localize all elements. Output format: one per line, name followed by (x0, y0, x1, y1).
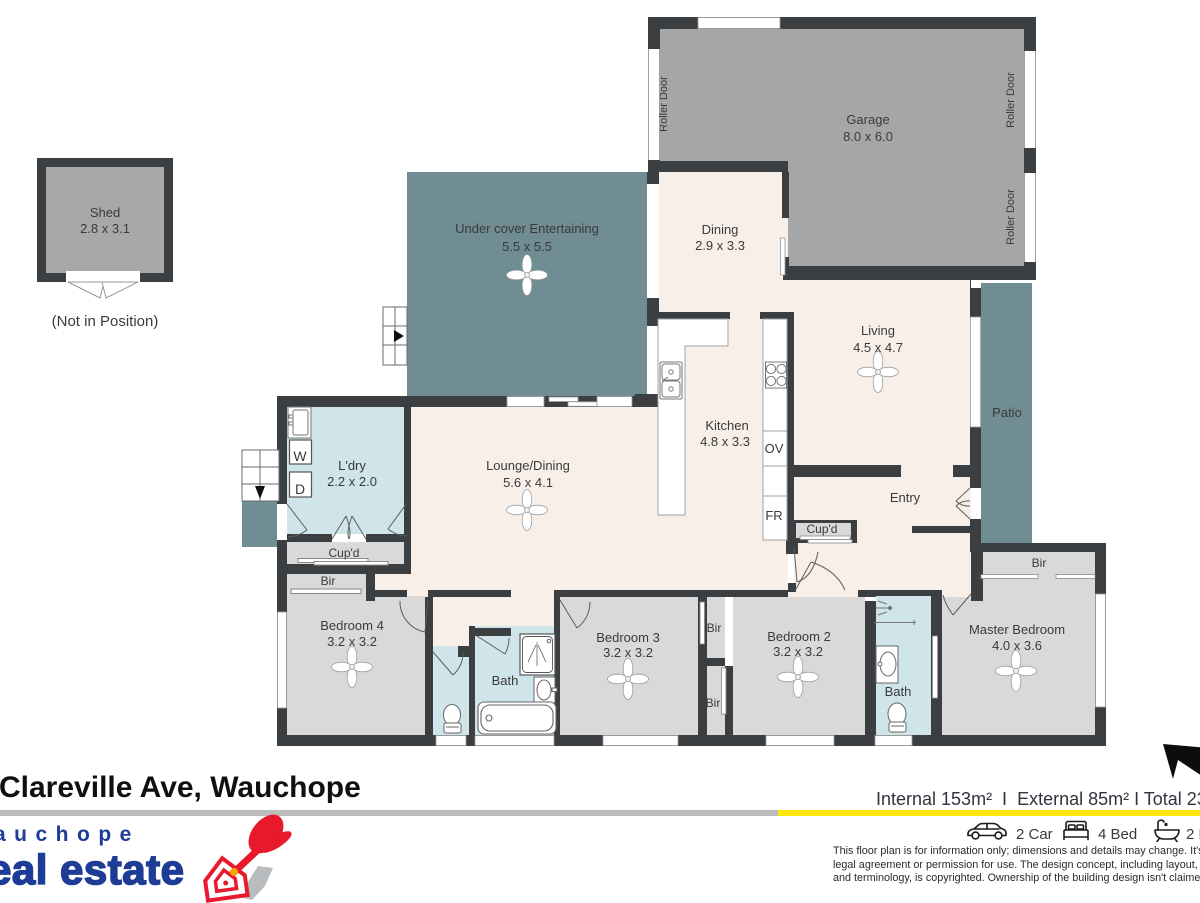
svg-text:Under cover Entertaining: Under cover Entertaining (455, 221, 599, 236)
svg-text:2 Car: 2 Car (1016, 826, 1053, 843)
svg-text:3.2 x 3.2: 3.2 x 3.2 (603, 645, 653, 660)
svg-text:L'dry: L'dry (338, 458, 366, 473)
svg-text:3.2 x 3.2: 3.2 x 3.2 (773, 644, 823, 659)
svg-text:4.5 x 4.7: 4.5 x 4.7 (853, 340, 903, 355)
svg-text:D: D (295, 481, 305, 497)
svg-text:(Not in Position): (Not in Position) (52, 313, 159, 330)
svg-text:3.2 x 3.2: 3.2 x 3.2 (327, 634, 377, 649)
svg-text:4 Bed: 4 Bed (1098, 826, 1137, 843)
svg-text:5.5 x 5.5: 5.5 x 5.5 (502, 239, 552, 254)
svg-text:Garage: Garage (846, 112, 889, 127)
svg-text:Bedroom 2: Bedroom 2 (767, 629, 831, 644)
svg-text:Bir: Bir (707, 621, 722, 635)
svg-text:OV: OV (765, 441, 784, 456)
svg-text:Bir: Bir (1032, 556, 1047, 570)
svg-text:2 B: 2 B (1186, 826, 1200, 843)
svg-text:Bedroom 3: Bedroom 3 (596, 630, 660, 645)
svg-text:Living: Living (861, 323, 895, 338)
svg-text:W: W (293, 448, 307, 464)
svg-text:Patio: Patio (992, 405, 1022, 420)
svg-text:Bir: Bir (706, 696, 721, 710)
svg-text:Cup'd: Cup'd (329, 546, 360, 560)
svg-text:Bath: Bath (885, 684, 912, 699)
svg-text:Entry: Entry (890, 490, 921, 505)
svg-text:2.9 x 3.3: 2.9 x 3.3 (695, 238, 745, 253)
svg-text:Master Bedroom: Master Bedroom (969, 622, 1065, 637)
svg-text:2.2 x 2.0: 2.2 x 2.0 (327, 474, 377, 489)
svg-text:4.0 x 3.6: 4.0 x 3.6 (992, 638, 1042, 653)
svg-text:Kitchen: Kitchen (705, 418, 748, 433)
svg-text:2.8 x 3.1: 2.8 x 3.1 (80, 221, 130, 236)
svg-text:Bath: Bath (492, 673, 519, 688)
svg-text:Lounge/Dining: Lounge/Dining (486, 458, 570, 473)
svg-text:8.0 x 6.0: 8.0 x 6.0 (843, 129, 893, 144)
svg-text:Roller Door: Roller Door (1005, 189, 1017, 245)
svg-text:Roller Door: Roller Door (658, 76, 670, 132)
svg-text:Cup'd: Cup'd (807, 522, 838, 536)
svg-text:5.6 x 4.1: 5.6 x 4.1 (503, 475, 553, 490)
svg-text:FR: FR (765, 508, 782, 523)
svg-text:Dining: Dining (702, 222, 739, 237)
svg-text:Shed: Shed (90, 205, 120, 220)
svg-text:4.8 x 3.3: 4.8 x 3.3 (700, 434, 750, 449)
svg-text:Roller Door: Roller Door (1005, 72, 1017, 128)
svg-text:Bir: Bir (321, 574, 336, 588)
svg-text:Bedroom 4: Bedroom 4 (320, 618, 384, 633)
